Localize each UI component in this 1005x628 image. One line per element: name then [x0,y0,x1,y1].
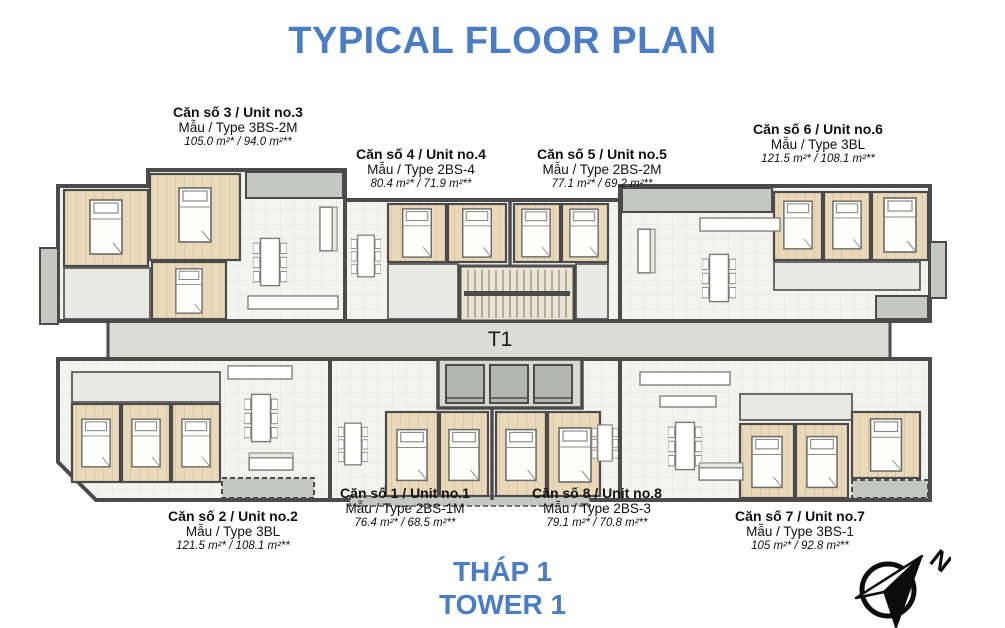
unit-3-plan [40,170,345,324]
unit-type: Mẫu / Type 2BS-2M [537,162,667,178]
unit-7-plan [620,359,930,500]
unit-name: Căn số 8 / Unit no.8 [532,485,662,501]
unit-area: 77.1 m²* / 69.2 m²** [537,178,667,191]
unit-4-5-plan [345,200,620,321]
unit-type: Mẫu / Type 3BL [168,524,298,540]
compass-north-label: N [924,543,951,578]
page-title: TYPICAL FLOOR PLAN [0,20,1005,63]
unit-label-2: Căn số 2 / Unit no.2 Mẫu / Type 3BL 121.… [168,508,298,553]
unit-name: Căn số 7 / Unit no.7 [735,508,865,524]
unit-area: 121.5 m²* / 108.1 m²** [753,153,883,166]
unit-area: 121.5 m²* / 108.1 m²** [168,540,298,553]
unit-name: Căn số 3 / Unit no.3 [173,104,303,120]
unit-name: Căn số 5 / Unit no.5 [537,146,667,162]
unit-area: 76.4 m²* / 68.5 m²** [340,517,470,530]
compass-needle [856,556,922,628]
unit-name: Căn số 4 / Unit no.4 [356,146,486,162]
unit-name: Căn số 1 / Unit no.1 [340,485,470,501]
unit-label-1: Căn số 1 / Unit no.1 Mẫu / Type 2BS-1M 7… [340,485,470,530]
unit-label-5: Căn số 5 / Unit no.5 Mẫu / Type 2BS-2M 7… [537,146,667,191]
unit-type: Mẫu / Type 2BS-4 [356,162,486,178]
unit-name: Căn số 2 / Unit no.2 [168,508,298,524]
unit-2-plan [58,359,330,500]
compass-icon: N [836,538,951,628]
unit-area: 105.0 m²* / 94.0 m²** [173,136,303,149]
staircase [460,266,574,321]
unit-label-3: Căn số 3 / Unit no.3 Mẫu / Type 3BS-2M 1… [173,104,303,149]
unit-6-plan [620,186,946,321]
unit-1-8-plan [330,359,620,506]
unit-label-8: Căn số 8 / Unit no.8 Mẫu / Type 2BS-3 79… [532,485,662,530]
unit-area: 80.4 m²* / 71.9 m²** [356,178,486,191]
unit-type: Mẫu / Type 3BS-2M [173,120,303,136]
core-label: T1 [488,328,513,352]
unit-type: Mẫu / Type 2BS-3 [532,501,662,517]
unit-type: Mẫu / Type 3BL [753,137,883,153]
unit-type: Mẫu / Type 2BS-1M [340,501,470,517]
unit-name: Căn số 6 / Unit no.6 [753,121,883,137]
floor-plan-page: { "title": "TYPICAL FLOOR PLAN", "core_l… [0,0,1005,628]
unit-label-4: Căn số 4 / Unit no.4 Mẫu / Type 2BS-4 80… [356,146,486,191]
unit-area: 79.1 m²* / 70.8 m²** [532,517,662,530]
elevator-core [438,359,582,408]
unit-label-6: Căn số 6 / Unit no.6 Mẫu / Type 3BL 121.… [753,121,883,166]
